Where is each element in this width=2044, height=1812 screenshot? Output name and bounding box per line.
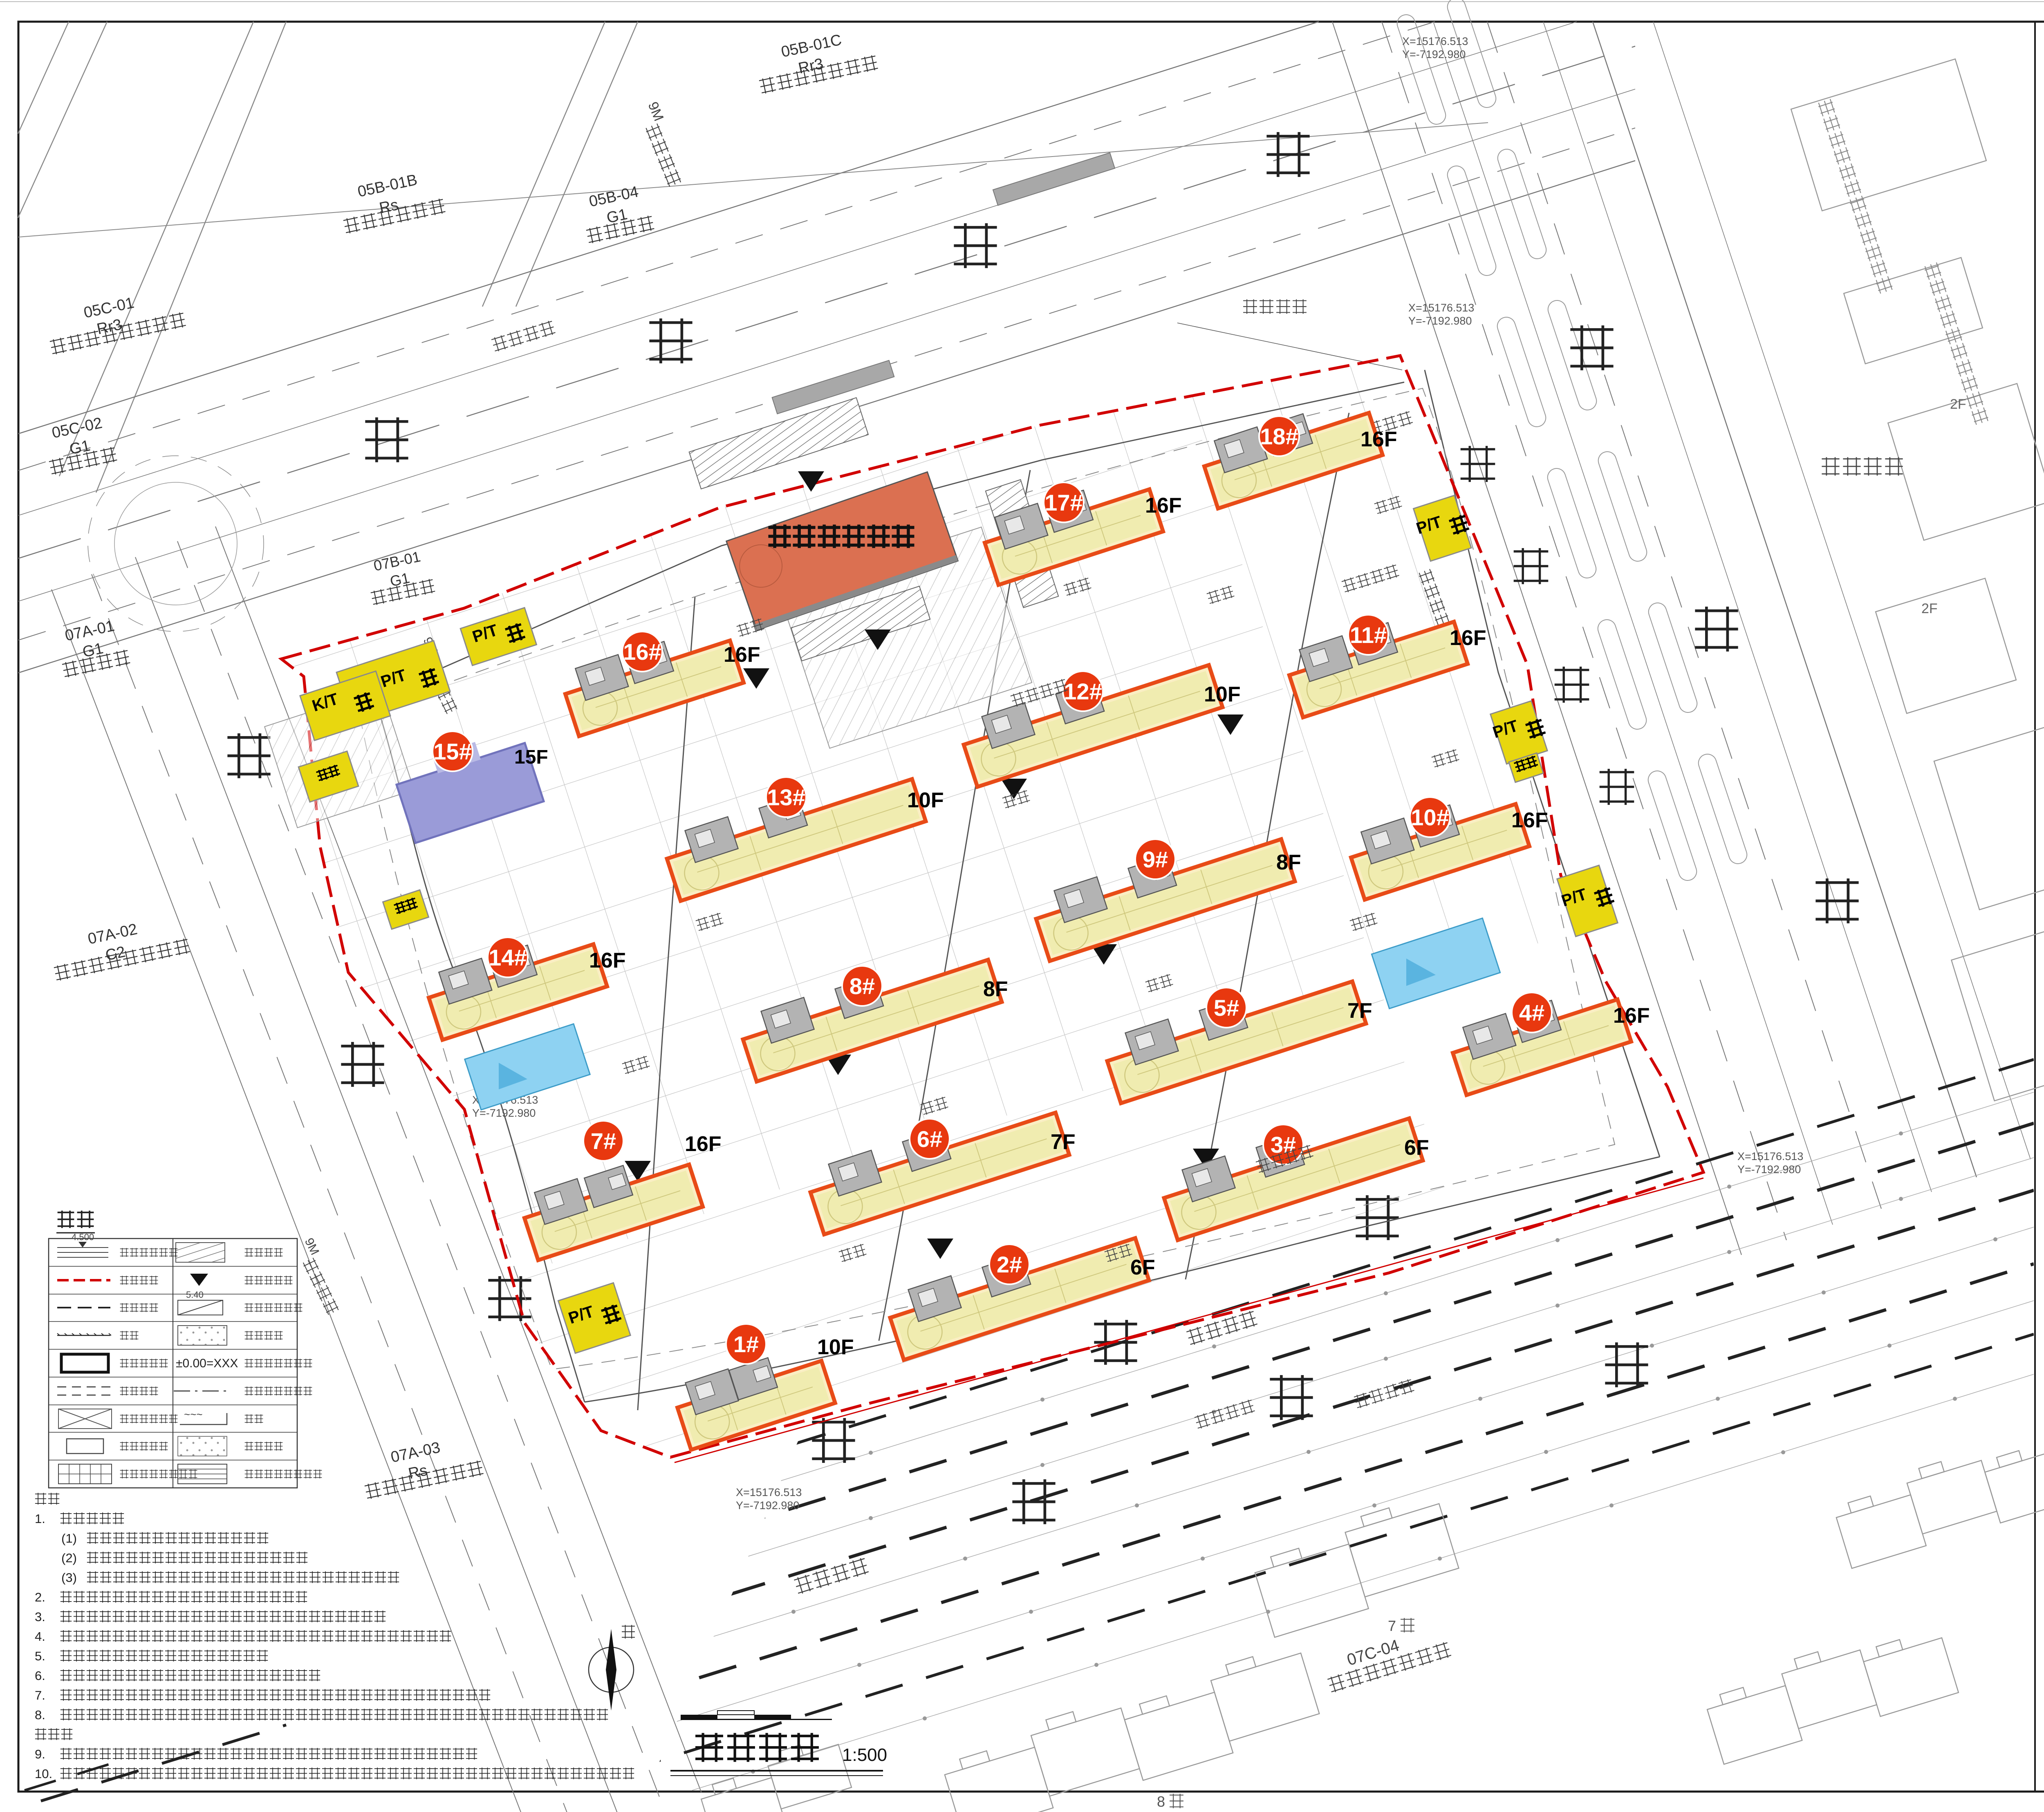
- svg-text:05C-02: 05C-02: [50, 414, 104, 442]
- svg-text:9M: 9M: [645, 100, 667, 123]
- svg-text:8F: 8F: [1276, 851, 1301, 874]
- svg-text:4#: 4#: [1519, 1000, 1544, 1026]
- svg-text:16F: 16F: [1145, 494, 1182, 517]
- svg-text:15#: 15#: [433, 739, 471, 764]
- svg-text:7: 7: [1388, 1617, 1396, 1634]
- svg-text:16F: 16F: [1360, 428, 1397, 451]
- svg-text:16F: 16F: [685, 1132, 722, 1156]
- svg-text:6.: 6.: [35, 1669, 45, 1683]
- svg-text:8F: 8F: [983, 977, 1008, 1001]
- svg-text:X=15176.513: X=15176.513: [1402, 35, 1468, 47]
- svg-text:15F: 15F: [514, 746, 548, 768]
- svg-text:X=15176.513: X=15176.513: [736, 1486, 802, 1498]
- svg-text:16#: 16#: [623, 639, 661, 665]
- svg-text:2.: 2.: [35, 1590, 45, 1604]
- svg-text:1#: 1#: [733, 1331, 759, 1357]
- svg-text:16F: 16F: [724, 643, 760, 667]
- svg-text:2#: 2#: [997, 1252, 1022, 1277]
- svg-text:X=15176.513: X=15176.513: [1408, 302, 1474, 314]
- svg-text:2F: 2F: [1950, 396, 1966, 412]
- svg-text:14#: 14#: [489, 945, 527, 970]
- svg-text:4.500: 4.500: [72, 1232, 94, 1242]
- svg-text:5#: 5#: [1214, 995, 1239, 1021]
- svg-text:11#: 11#: [1350, 622, 1387, 648]
- svg-text:12#: 12#: [1064, 679, 1102, 704]
- svg-text:9M: 9M: [302, 1236, 322, 1257]
- svg-text:(3): (3): [61, 1570, 77, 1585]
- svg-text:10F: 10F: [907, 788, 944, 812]
- svg-text:X=15176.513: X=15176.513: [1737, 1150, 1803, 1162]
- svg-text:10.: 10.: [35, 1767, 52, 1781]
- svg-text:9#: 9#: [1143, 847, 1168, 872]
- svg-text:5.: 5.: [35, 1649, 45, 1663]
- svg-text:17#: 17#: [1044, 490, 1083, 515]
- svg-text:1.: 1.: [35, 1512, 45, 1526]
- svg-text:8#: 8#: [849, 973, 875, 999]
- svg-text:13#: 13#: [767, 784, 805, 810]
- svg-text:16F: 16F: [1511, 809, 1548, 832]
- svg-text:7F: 7F: [1347, 999, 1372, 1023]
- svg-text:10F: 10F: [1204, 683, 1241, 706]
- svg-text:7#: 7#: [591, 1128, 616, 1154]
- svg-text:3#: 3#: [1271, 1132, 1296, 1158]
- svg-text:10F: 10F: [817, 1335, 854, 1359]
- svg-text:16F: 16F: [589, 949, 626, 972]
- svg-text:8: 8: [1157, 1793, 1165, 1810]
- svg-text:07A-02: 07A-02: [86, 921, 139, 948]
- svg-text:~~~: ~~~: [184, 1408, 203, 1420]
- svg-text:Y=-7192.980: Y=-7192.980: [1402, 48, 1466, 60]
- svg-text:3.: 3.: [35, 1610, 45, 1624]
- svg-text:05B-01B: 05B-01B: [356, 171, 419, 201]
- svg-text:Y=-7192.980: Y=-7192.980: [1737, 1163, 1801, 1176]
- svg-text:7F: 7F: [1051, 1130, 1076, 1154]
- svg-text:5.40: 5.40: [186, 1290, 204, 1300]
- svg-text:2F: 2F: [1921, 601, 1938, 616]
- svg-text:Y=-7192.980: Y=-7192.980: [1408, 315, 1472, 327]
- svg-text:16F: 16F: [1613, 1004, 1650, 1028]
- svg-text:7.: 7.: [35, 1688, 45, 1702]
- svg-text:±0.00=XXX: ±0.00=XXX: [176, 1357, 238, 1370]
- svg-text:05B-01C: 05B-01C: [780, 31, 843, 61]
- svg-text:9.: 9.: [35, 1747, 45, 1761]
- svg-text:16F: 16F: [1450, 626, 1486, 650]
- svg-text:07B-01: 07B-01: [372, 548, 422, 574]
- svg-text:07A-01: 07A-01: [63, 617, 116, 645]
- svg-text:10#: 10#: [1411, 804, 1449, 830]
- svg-text:4.: 4.: [35, 1629, 45, 1644]
- svg-text:Y=-7192.980: Y=-7192.980: [736, 1499, 799, 1512]
- svg-text:05B-04: 05B-04: [587, 183, 640, 211]
- svg-text:6#: 6#: [917, 1126, 942, 1152]
- svg-text:(1): (1): [61, 1531, 77, 1545]
- svg-text:8.: 8.: [35, 1708, 45, 1722]
- svg-text:07A-03: 07A-03: [389, 1439, 442, 1466]
- svg-text:18#: 18#: [1260, 423, 1298, 449]
- svg-text:1:500: 1:500: [842, 1745, 887, 1765]
- svg-text:6F: 6F: [1130, 1256, 1155, 1279]
- svg-text:(2): (2): [61, 1551, 77, 1565]
- svg-text:6F: 6F: [1404, 1136, 1429, 1160]
